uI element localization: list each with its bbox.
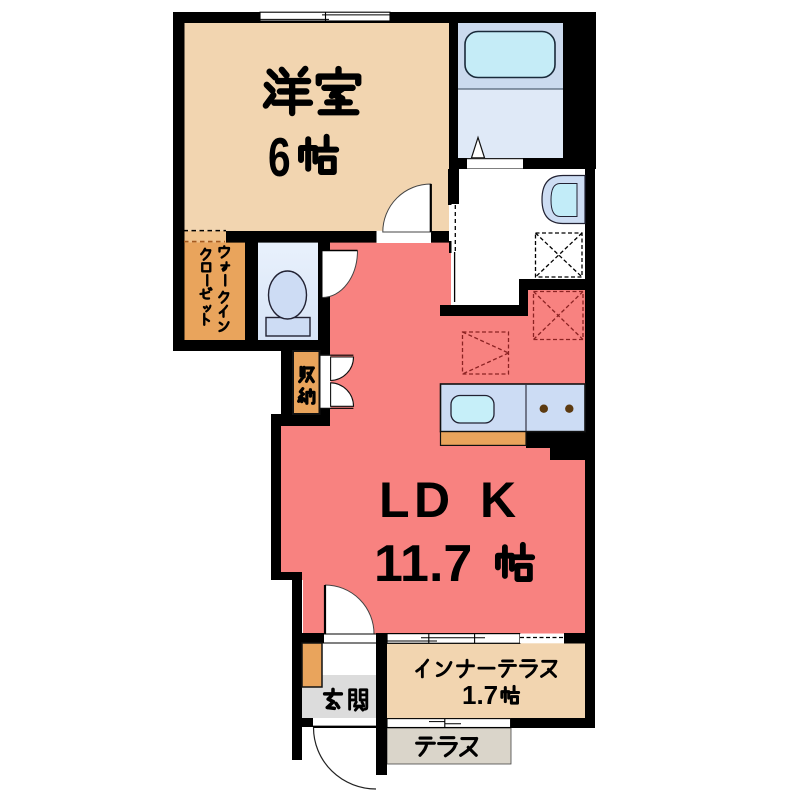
svg-text:1.7: 1.7 xyxy=(462,680,498,710)
svg-text:K: K xyxy=(480,472,516,528)
svg-text:D: D xyxy=(414,472,450,528)
svg-text:6: 6 xyxy=(268,127,291,188)
svg-text:L: L xyxy=(379,472,410,528)
svg-text:11.7: 11.7 xyxy=(374,535,472,593)
